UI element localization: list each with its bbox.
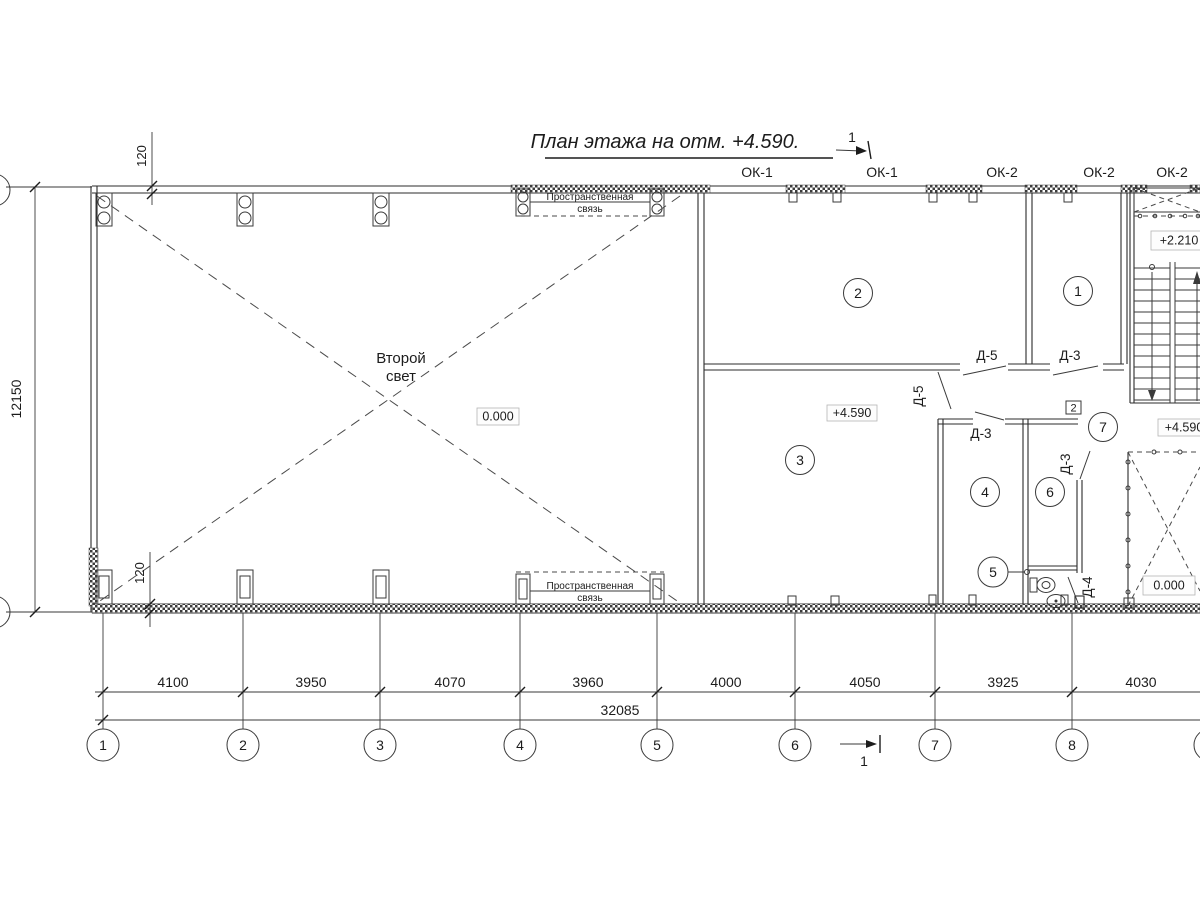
room-number-4: 4 <box>981 484 989 500</box>
window-label-ok2-a: ОК-2 <box>986 164 1018 180</box>
door-label-d3-room6: Д-3 <box>1058 453 1073 474</box>
room-number-3: 3 <box>796 452 804 468</box>
floor-plan-drawing: План этажа на отм. +4.590. 1 1 ОК-1 ОК-1… <box>0 0 1200 900</box>
window-labels: ОК-1 ОК-1 ОК-2 ОК-2 ОК-2 <box>741 164 1188 180</box>
elevation-shaft: 0.000 <box>1153 579 1184 593</box>
dimension-wall-top: 120 <box>134 145 149 167</box>
grid-axis-6: 6 <box>791 737 799 753</box>
window-label-ok2-b: ОК-2 <box>1083 164 1115 180</box>
dim-span-2-3: 3950 <box>295 674 326 690</box>
elevation-stair-landing: +2.210 <box>1160 234 1199 248</box>
column-top-2 <box>237 193 253 226</box>
column-bottom-3 <box>373 570 389 604</box>
second-light-label-line1: Второй <box>376 350 426 367</box>
drawing-title: План этажа на отм. +4.590. <box>531 131 833 158</box>
room-number-7: 7 <box>1099 419 1107 435</box>
room-markers: 1 2 3 4 5 6 7 2 <box>786 277 1118 588</box>
grid-axis-8: 8 <box>1068 737 1076 753</box>
dim-span-6-7: 4050 <box>849 674 880 690</box>
room-number-1: 1 <box>1074 283 1082 299</box>
grid-axis-3: 3 <box>376 737 384 753</box>
grid-axis-9-partial <box>1194 729 1200 761</box>
column-top-3 <box>373 193 389 226</box>
dimension-left-height: 12150 <box>8 379 24 418</box>
second-light-cross: Второй свет <box>97 196 680 603</box>
section-number-top: 1 <box>848 129 856 145</box>
dim-total: 32085 <box>601 702 640 718</box>
second-light-label-line2: свет <box>386 368 416 385</box>
door-label-d3-room4: Д-3 <box>970 426 991 441</box>
grid-axes: 1 2 3 4 5 6 7 8 <box>87 729 1200 761</box>
column-bottom-1 <box>96 570 112 604</box>
staircase <box>1130 187 1200 403</box>
dimension-wall-bottom: 120 <box>132 562 147 584</box>
section-number-bottom: 1 <box>860 753 868 769</box>
room-number-6: 6 <box>1046 484 1054 500</box>
wc-fixtures <box>1030 578 1065 608</box>
door-label-d5-side: Д-5 <box>911 385 926 406</box>
spatial-link-top-line1: Пространственная <box>547 192 634 203</box>
spatial-link-bottom-line1: Пространственная <box>547 581 634 592</box>
spatial-link-top-line2: связь <box>577 204 602 215</box>
drawing-sheet: План этажа на отм. +4.590. 1 1 ОК-1 ОК-1… <box>0 0 1200 900</box>
section-marker-bottom: 1 <box>840 735 880 769</box>
column-top-1 <box>96 193 112 226</box>
grid-axis-1: 1 <box>99 737 107 753</box>
column-bottom-2 <box>237 570 253 604</box>
elevation-right-hall: +4.590 <box>1165 421 1200 435</box>
window-label-ok2-c: ОК-2 <box>1156 164 1188 180</box>
page-title: План этажа на отм. +4.590. <box>531 131 800 153</box>
grid-axis-2: 2 <box>239 737 247 753</box>
elevation-second-light: 0.000 <box>482 410 513 424</box>
door-labels: Д-5 Д-3 Д-5 Д-3 Д-3 Д-4 <box>911 348 1095 598</box>
elevation-room3: +4.590 <box>833 406 872 420</box>
dim-span-7-8: 3925 <box>987 674 1018 690</box>
room-number-2: 2 <box>854 285 862 301</box>
grid-axis-7: 7 <box>931 737 939 753</box>
dim-span-1-2: 4100 <box>157 674 188 690</box>
grid-axis-4: 4 <box>516 737 524 753</box>
dim-span-5-6: 4000 <box>710 674 741 690</box>
stair-down-arrow <box>1148 390 1156 401</box>
grid-axis-5: 5 <box>653 737 661 753</box>
columns <box>96 193 389 604</box>
dim-span-3-4: 4070 <box>434 674 465 690</box>
spatial-link-bottom-line2: связь <box>577 593 602 604</box>
door-label-d3-top: Д-3 <box>1059 348 1080 363</box>
section-marker-top: 1 <box>836 129 871 159</box>
dim-span-8-9: 4030 <box>1125 674 1156 690</box>
dimension-left: 12150 120 120 <box>0 132 157 628</box>
toilet <box>1030 578 1055 593</box>
exterior-walls <box>89 185 1200 613</box>
room-number-5: 5 <box>989 564 997 580</box>
window-label-ok1-b: ОК-1 <box>866 164 898 180</box>
door-label-d5-top: Д-5 <box>976 348 997 363</box>
room-tag-box: 2 <box>1070 403 1076 415</box>
dim-span-4-5: 3960 <box>572 674 603 690</box>
dimension-bottom: 4100 3950 4070 3960 4000 4050 3925 4030 … <box>95 613 1200 729</box>
stair-up-arrow <box>1193 271 1200 284</box>
door-label-d4-wc: Д-4 <box>1080 576 1095 598</box>
window-label-ok1-a: ОК-1 <box>741 164 773 180</box>
